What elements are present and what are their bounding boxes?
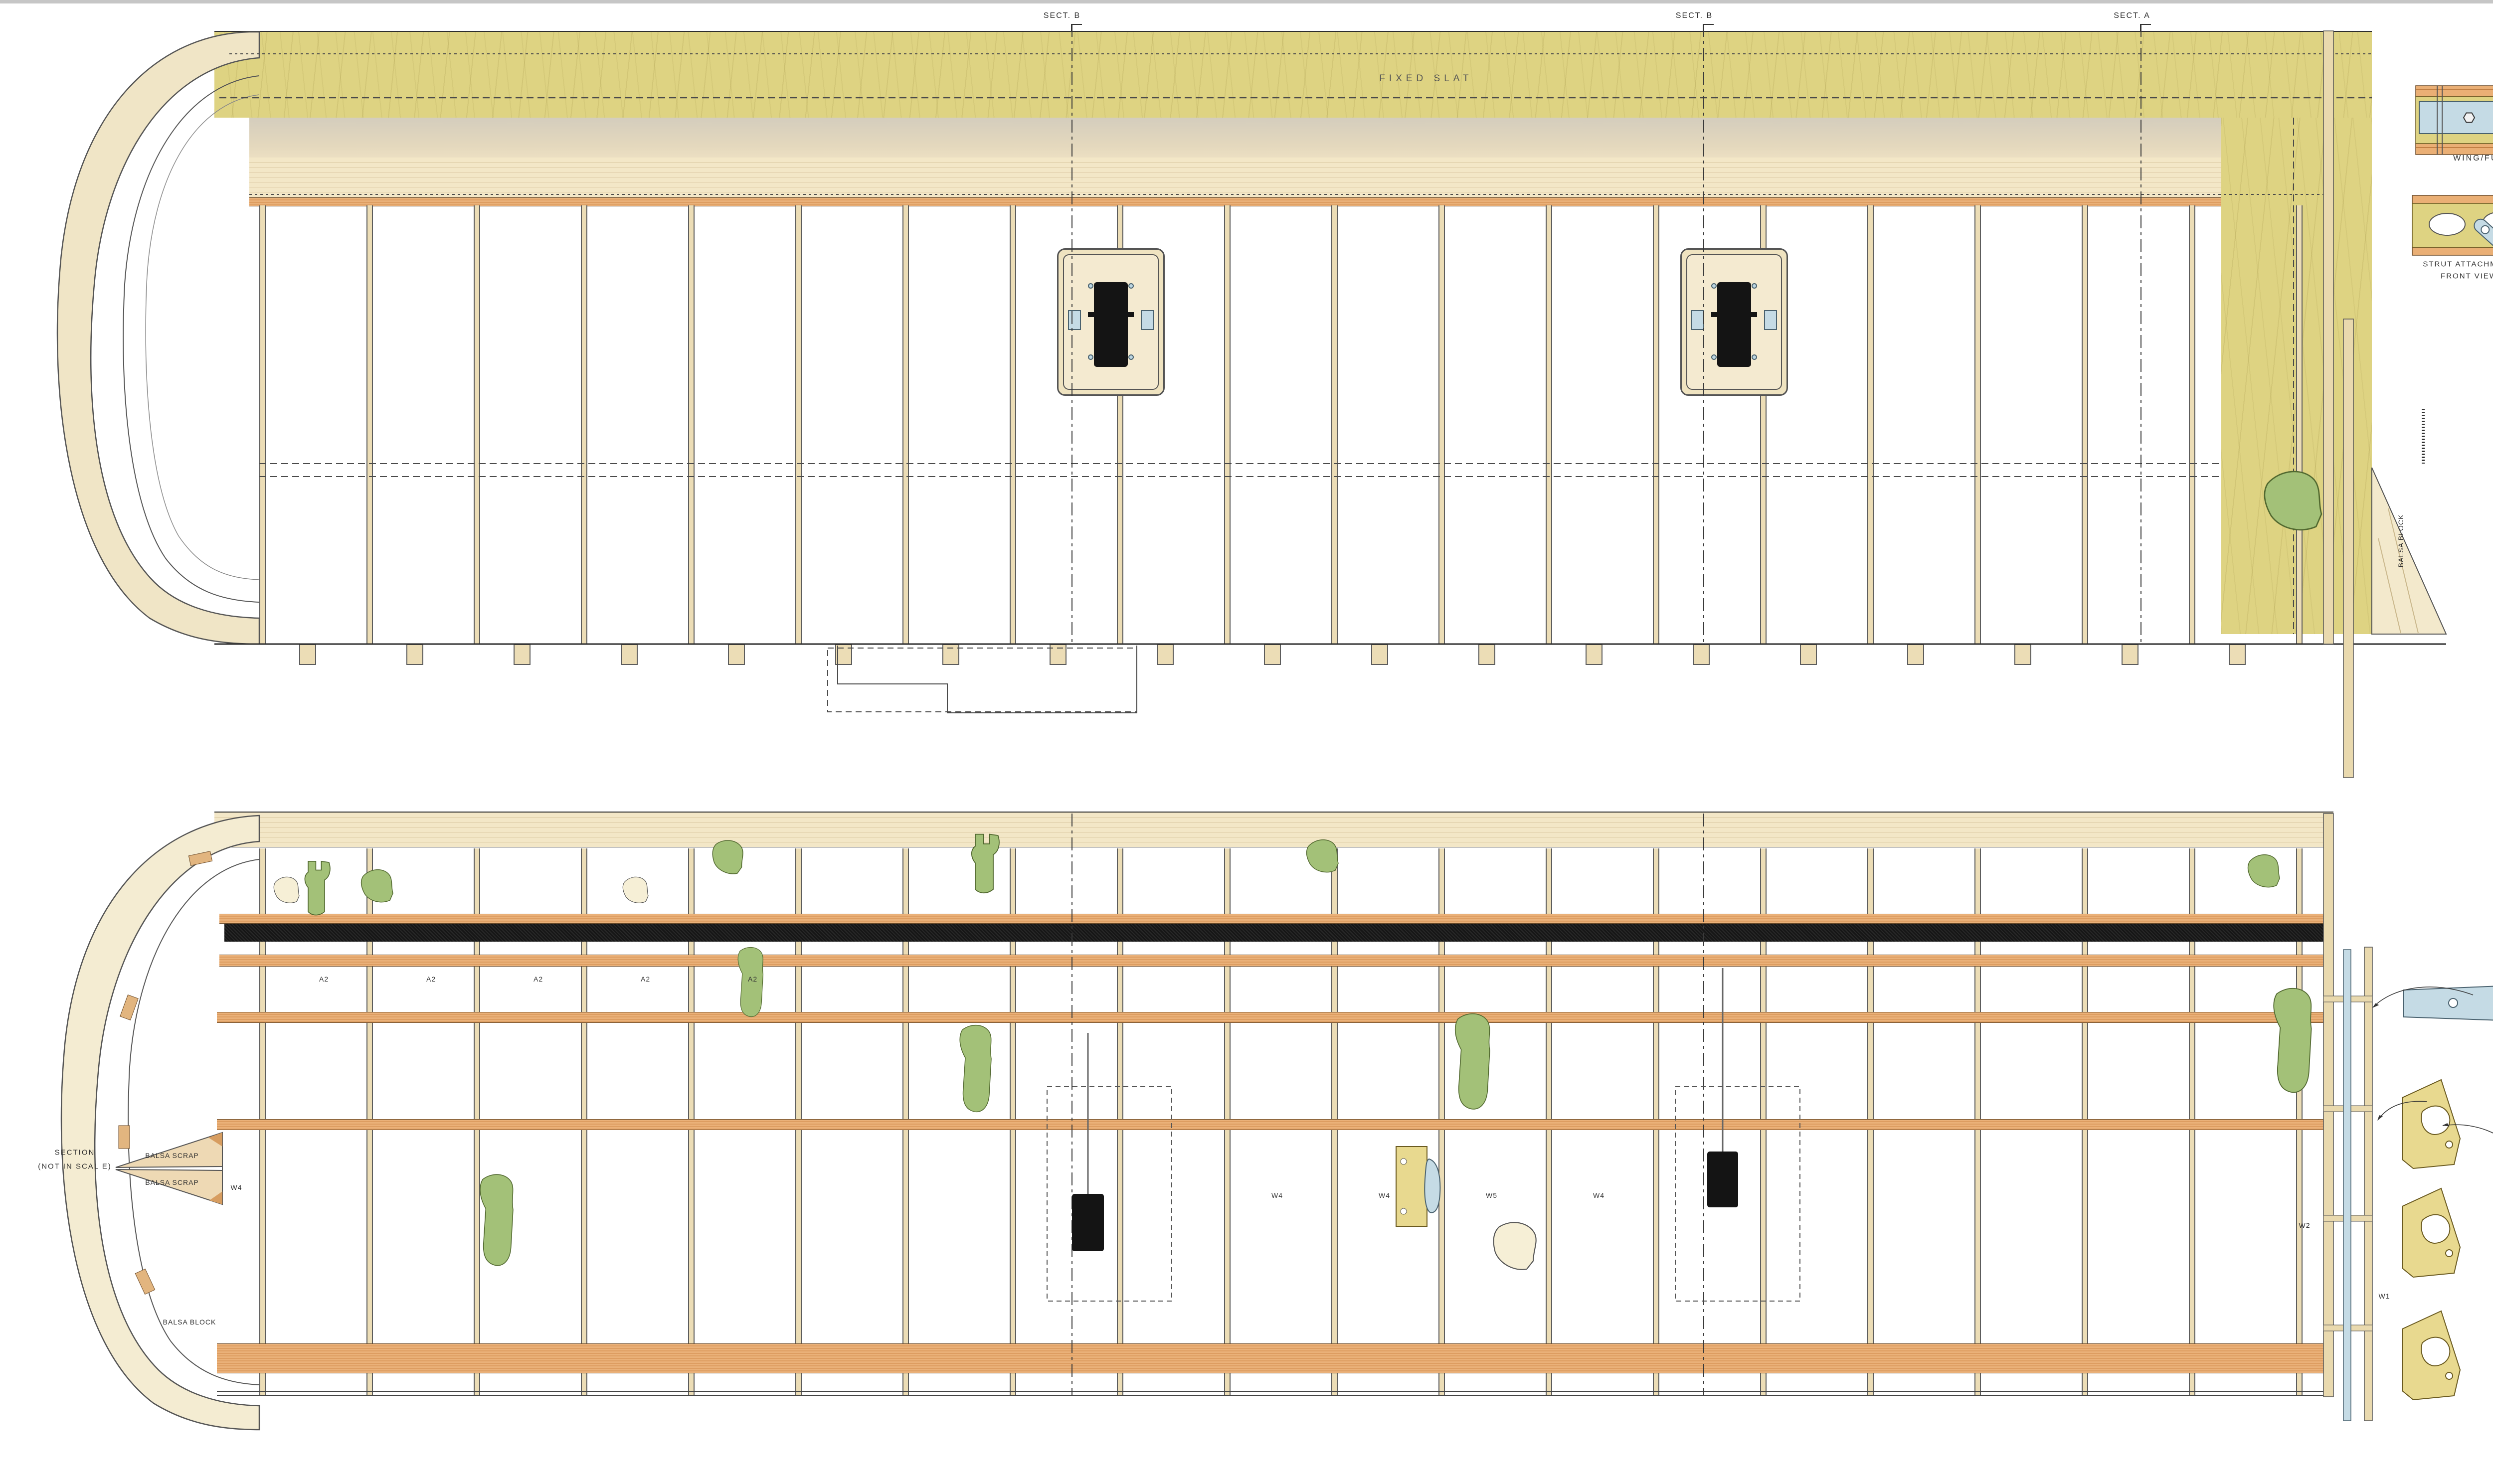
section-note-line1: SECTION xyxy=(55,1149,95,1157)
rib-label: W4 xyxy=(1593,1191,1700,1199)
plan-sheet: FIXED SLAT SECT. B SECT. B SECT. A BALSA… xyxy=(0,0,2493,1484)
rib-label: A2 xyxy=(319,975,426,983)
rib-label: A2 xyxy=(641,975,748,983)
cut-mark-icon xyxy=(1703,24,1714,31)
bottom-servos xyxy=(1047,968,1800,1301)
top-plan-wingtip xyxy=(57,32,259,644)
rib-label: W5 xyxy=(1486,1191,1593,1199)
root-rib-w2-label: W2 xyxy=(2299,1221,2311,1229)
bottom-section-cut-lines xyxy=(1072,814,1704,1395)
window-top-edge xyxy=(0,0,2493,3)
root-rib-w1-label: W1 xyxy=(2379,1292,2390,1300)
rib-label: A2 xyxy=(426,975,534,983)
section-cut-label-a: SECT. A xyxy=(2114,11,2150,20)
balsa-scrap-label-1: BALSA SCRAP xyxy=(145,1152,199,1159)
cut-mark-icon xyxy=(2140,24,2151,31)
rib-label: W4 xyxy=(1271,1191,1379,1199)
tip-rib-label: W4 xyxy=(231,1183,242,1191)
drawing-overlay xyxy=(0,0,2493,1484)
strut-attachment-label-2: FRONT VIEW xyxy=(2441,272,2493,281)
wing-fuselage-attachment-label: WING/FUSELAGE ATTACHMENT xyxy=(2453,154,2493,163)
rib-label: W4 xyxy=(1379,1191,1486,1199)
cut-mark-icon xyxy=(1071,24,1082,31)
section-cut-label-b1: SECT. B xyxy=(1044,11,1080,20)
section-cut-lines xyxy=(1072,24,2141,646)
section-note-line2: (NOT IN SCAL E) xyxy=(38,1162,112,1171)
balsa-block-label-top: BALSA BLOCK xyxy=(2397,514,2405,568)
section-cut-label-b2: SECT. B xyxy=(1676,11,1713,20)
fixed-slat-label: FIXED SLAT xyxy=(1379,73,1472,84)
bottom-plan-wingtip xyxy=(61,816,259,1430)
fiberglass-parts xyxy=(305,834,2311,1266)
a2-rib-labels: A2A2A2A2A2 xyxy=(319,975,855,983)
balsa-block-label-bottom: BALSA BLOCK xyxy=(163,1318,216,1326)
rib-label: A2 xyxy=(534,975,641,983)
poplar-small-parts xyxy=(274,877,1542,1273)
w-rib-labels: W4W4W5W4 xyxy=(1271,1191,1700,1199)
top-plan-lines xyxy=(214,54,2446,713)
bottom-plan-root xyxy=(2323,814,2493,1421)
rib-label: A2 xyxy=(748,975,855,983)
strut-attachment-label-1: STRUT ATTACHMENT xyxy=(2423,260,2493,269)
strut-attachment-detail xyxy=(2412,183,2493,319)
balsa-scrap-label-2: BALSA SCRAP xyxy=(145,1178,199,1186)
